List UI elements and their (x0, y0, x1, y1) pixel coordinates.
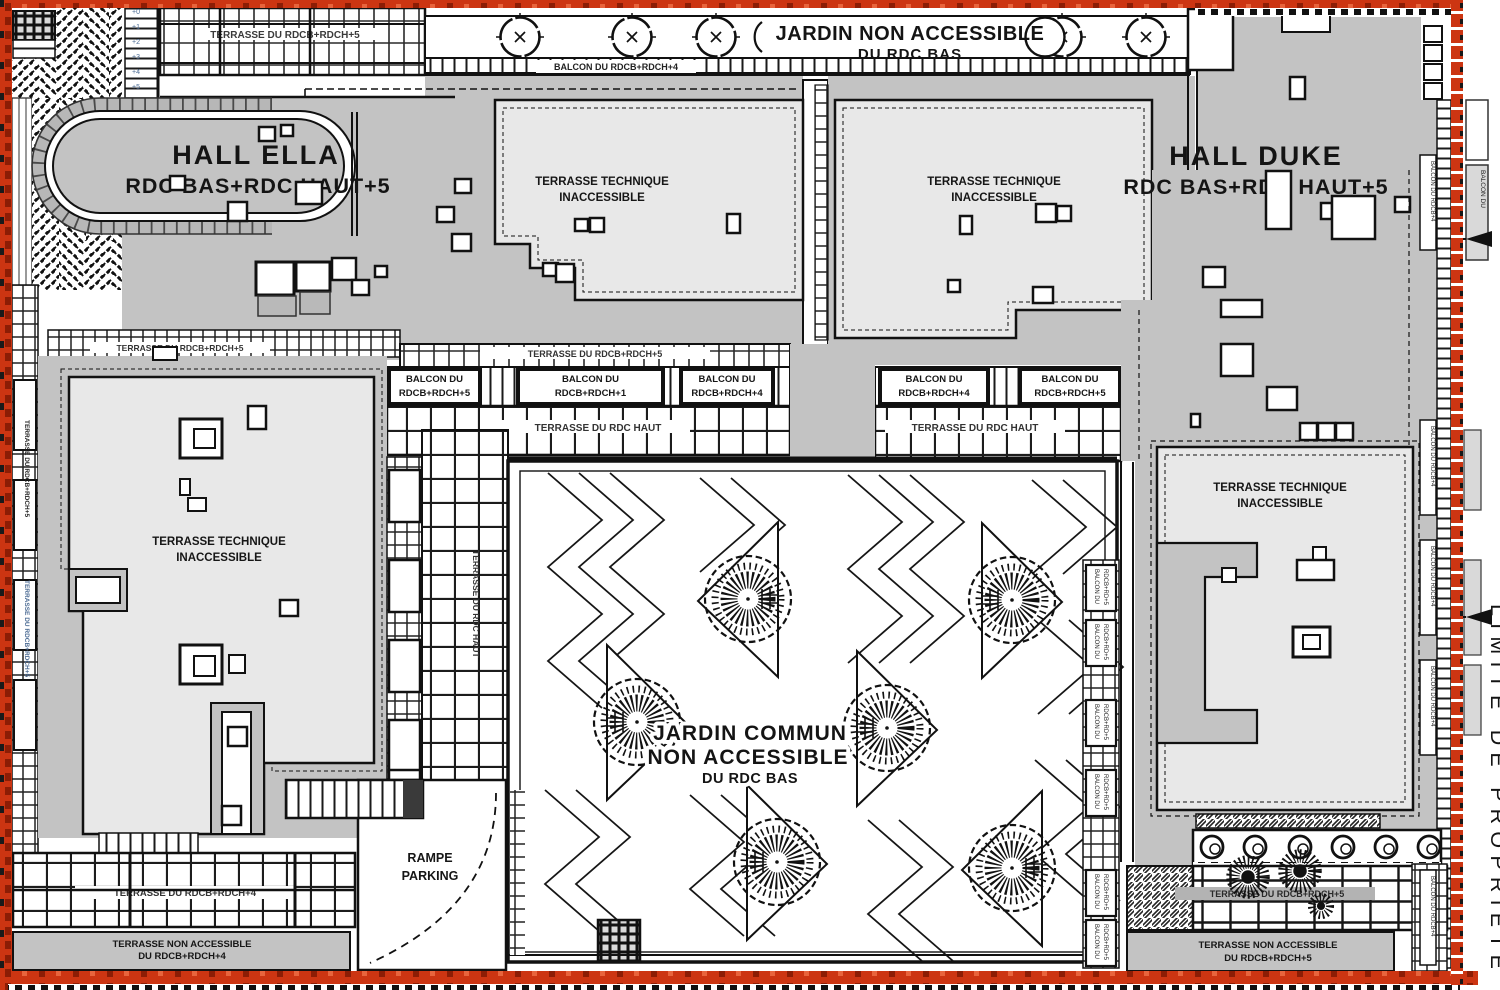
svg-text:DU RDC BAS: DU RDC BAS (702, 771, 798, 787)
svg-text:BALCON DU: BALCON DU (906, 374, 963, 385)
svg-text:BALCON DU: BALCON DU (406, 374, 463, 385)
svg-text:RDCB+RD+5: RDCB+RD+5 (1102, 924, 1108, 961)
svg-text:TERRASSE DU RDCB+RDCH+5: TERRASSE DU RDCB+RDCH+5 (210, 30, 360, 41)
svg-text:BALCON DU RDCB+RDCH+4: BALCON DU RDCB+RDCH+4 (554, 62, 678, 72)
svg-text:RDCB+RD+5: RDCB+RD+5 (1102, 874, 1108, 911)
svg-text:DU RDCB+RDCH+5: DU RDCB+RDCH+5 (1224, 953, 1312, 964)
svg-text:INACCESSIBLE: INACCESSIBLE (1237, 498, 1323, 510)
svg-text:RDCB+RDCH+5: RDCB+RDCH+5 (1034, 388, 1106, 399)
svg-text:TERRASSE DU RDC HAUT: TERRASSE DU RDC HAUT (535, 423, 662, 434)
svg-text:BALCON DU RDCB+4: BALCON DU RDCB+4 (1429, 426, 1435, 487)
svg-text:+2: +2 (132, 39, 140, 46)
svg-text:BALCON DU: BALCON DU (1093, 704, 1099, 739)
svg-text:+3: +3 (132, 54, 140, 61)
svg-text:BALCON DU: BALCON DU (1042, 374, 1099, 385)
svg-text:BALCON DU RDCB+4: BALCON DU RDCB+4 (1429, 666, 1435, 727)
svg-text:INACCESSIBLE: INACCESSIBLE (559, 192, 645, 204)
svg-text:RDCB+RD+5: RDCB+RD+5 (1102, 624, 1108, 661)
svg-text:PARKING: PARKING (402, 869, 459, 883)
svg-text:TERRASSE DU RDC HAUT: TERRASSE DU RDC HAUT (471, 550, 481, 658)
svg-text:BALCON DU: BALCON DU (1093, 924, 1099, 959)
svg-text:INACCESSIBLE: INACCESSIBLE (176, 552, 262, 564)
svg-text:HALL ELLA: HALL ELLA (172, 140, 340, 170)
svg-text:RDCB+RDCH+4: RDCB+RDCH+4 (691, 388, 763, 399)
svg-text:BALCON DU RDCB+4: BALCON DU RDCB+4 (1429, 876, 1435, 937)
svg-text:TERRASSE TECHNIQUE: TERRASSE TECHNIQUE (927, 176, 1061, 188)
svg-text:TERRASSE DU RDCB+RDCH+5: TERRASSE DU RDCB+RDCH+5 (23, 420, 30, 518)
svg-text:DU RDC BAS: DU RDC BAS (858, 46, 962, 63)
svg-text:TERRASSE DU RDCB+RDCH+5: TERRASSE DU RDCB+RDCH+5 (23, 580, 30, 678)
svg-text:RDCB+RDCH+5: RDCB+RDCH+5 (399, 388, 471, 399)
svg-text:TERRASSE TECHNIQUE: TERRASSE TECHNIQUE (535, 176, 669, 188)
svg-text:TERRASSE NON ACCESSIBLE: TERRASSE NON ACCESSIBLE (1199, 940, 1338, 951)
svg-text:TERRASSE DU RDC HAUT: TERRASSE DU RDC HAUT (912, 423, 1039, 434)
svg-text:RDCB+RDCH+1: RDCB+RDCH+1 (555, 388, 627, 399)
svg-text:INACCESSIBLE: INACCESSIBLE (951, 192, 1037, 204)
svg-text:+1: +1 (132, 24, 140, 31)
svg-text:JARDIN COMMUN: JARDIN COMMUN (653, 722, 847, 745)
svg-text:BALCON DU: BALCON DU (1093, 569, 1099, 604)
svg-text:JARDIN NON ACCESSIBLE: JARDIN NON ACCESSIBLE (776, 23, 1045, 45)
svg-text:BALCON DU RDCB+4: BALCON DU RDCB+4 (1429, 161, 1435, 222)
svg-text:TERRASSE DU RDCB+RDCH+5: TERRASSE DU RDCB+RDCH+5 (116, 343, 243, 353)
svg-text:RDCB+RD+5: RDCB+RD+5 (1102, 774, 1108, 811)
svg-text:BALCON DU: BALCON DU (1093, 774, 1099, 809)
svg-text:RDCB+RDCH+4: RDCB+RDCH+4 (898, 388, 970, 399)
svg-text:DU RDCB+RDCH+4: DU RDCB+RDCH+4 (138, 951, 226, 962)
svg-text:TERRASSE DU RDCB+RDCH+5: TERRASSE DU RDCB+RDCH+5 (528, 349, 663, 359)
svg-text:+5: +5 (132, 84, 140, 91)
svg-text:BALCON DU RDCB+4: BALCON DU RDCB+4 (1429, 546, 1435, 607)
svg-text:TERRASSE NON ACCESSIBLE: TERRASSE NON ACCESSIBLE (113, 939, 252, 950)
svg-text:BALCON DU: BALCON DU (1479, 170, 1486, 208)
svg-text:BALCON DU: BALCON DU (562, 374, 619, 385)
svg-text:TERRASSE TECHNIQUE: TERRASSE TECHNIQUE (1213, 482, 1347, 494)
svg-text:BALCON DU: BALCON DU (699, 374, 756, 385)
svg-text:NON ACCESSIBLE: NON ACCESSIBLE (647, 746, 848, 769)
svg-text:BALCON DU: BALCON DU (1093, 874, 1099, 909)
svg-text:HALL DUKE: HALL DUKE (1169, 141, 1343, 171)
svg-text:+4: +4 (132, 69, 140, 76)
svg-text:RAMPE: RAMPE (407, 851, 452, 865)
svg-text:BALCON DU: BALCON DU (1093, 624, 1099, 659)
svg-text:RDCB+RD+5: RDCB+RD+5 (1102, 569, 1108, 606)
svg-text:TERRASSE TECHNIQUE: TERRASSE TECHNIQUE (152, 536, 286, 548)
svg-text:RDCB+RD+5: RDCB+RD+5 (1102, 704, 1108, 741)
svg-text:RDC BAS+RDC HAUT+5: RDC BAS+RDC HAUT+5 (125, 174, 390, 198)
svg-text:+0: +0 (132, 9, 140, 16)
